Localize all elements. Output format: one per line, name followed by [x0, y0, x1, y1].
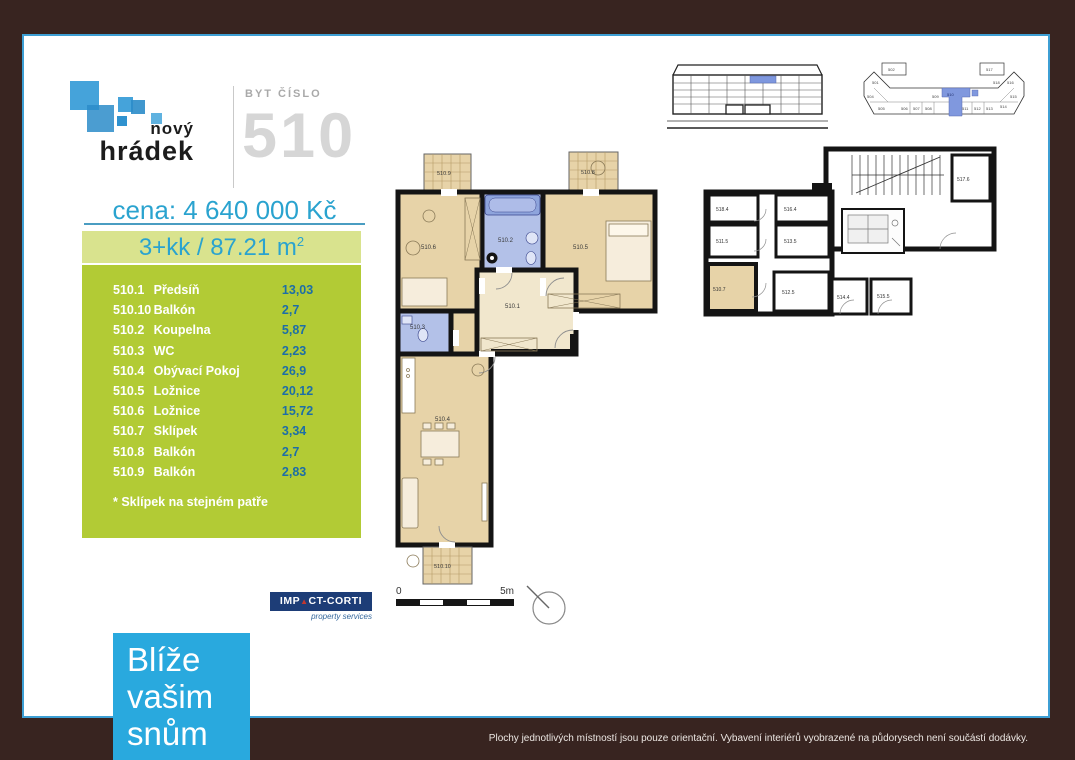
- plan-label: 514.4: [837, 295, 850, 301]
- layout-summary-sup: 2: [297, 234, 304, 249]
- overview-unit-label: 512: [974, 106, 981, 111]
- plan-label: 510.2: [498, 238, 514, 244]
- flyer-canvas: nový hrádek BYT ČÍSLO 510 cena: 4 640 00…: [0, 0, 1075, 760]
- room-name: Balkón: [154, 300, 282, 320]
- overview-unit-label: 514: [1000, 104, 1007, 109]
- room-code: 510.10: [113, 300, 154, 320]
- logo-square-icon: [131, 100, 145, 114]
- scale-bar-segments: [396, 599, 514, 606]
- overview-unit-label: 516: [1007, 80, 1014, 85]
- plan-label: 510.3: [410, 325, 426, 331]
- plan-label: 511.5: [716, 239, 728, 245]
- plan-label: 510.10: [434, 564, 451, 570]
- room-area: 15,72: [282, 401, 341, 421]
- plan-label: 518.4: [716, 207, 729, 213]
- cellar-floor-plan: 518.4 516.4 511.5 513.5 510.7 512.5 514.…: [700, 143, 1015, 328]
- overview-unit-label: 502: [888, 67, 895, 72]
- room-name: Sklípek: [154, 421, 282, 441]
- room-area: 2,83: [282, 462, 341, 482]
- plan-label: 512.5: [782, 290, 795, 296]
- room-area: 13,03: [282, 280, 341, 300]
- room-code: 510.6: [113, 401, 154, 421]
- brand-name: nový hrádek: [64, 120, 194, 164]
- room-area: 2,23: [282, 341, 341, 361]
- room-area: 2,7: [282, 300, 341, 320]
- room-area: 5,87: [282, 320, 341, 340]
- overview-unit-label: 508: [925, 106, 932, 111]
- plan-label: 516.4: [784, 207, 797, 213]
- impact-corti-text: CT-CORTI: [309, 595, 363, 607]
- room-name: Ložnice: [154, 381, 282, 401]
- price-underline: [84, 223, 365, 225]
- tagline-line: snům: [127, 715, 250, 752]
- overview-unit-label: 505: [878, 106, 885, 111]
- brand-name-bottom: hrádek: [64, 138, 194, 164]
- plan-label: 510.9: [437, 171, 451, 177]
- overview-unit-label: 517: [986, 67, 993, 72]
- plan-label: 510.6: [421, 245, 437, 251]
- room-name: WC: [154, 341, 282, 361]
- plan-label: 517.6: [957, 177, 970, 183]
- tagline-line: vašim: [127, 678, 250, 715]
- room-code: 510.9: [113, 462, 154, 482]
- room-code: 510.8: [113, 442, 154, 462]
- room-area: 2,7: [282, 442, 341, 462]
- impact-corti-logo: IMP▲CT-CORTI: [270, 592, 372, 611]
- plan-label: 510.1: [505, 304, 521, 310]
- header-divider: [233, 86, 234, 188]
- compass-icon: [519, 581, 579, 641]
- layout-summary-text: 3+kk / 87.21 m: [139, 234, 297, 261]
- room-code: 510.2: [113, 320, 154, 340]
- scale-start: 0: [396, 586, 402, 597]
- overview-unit-label: 504: [867, 94, 874, 99]
- table-row: 510.7Sklípek3,34: [113, 421, 341, 441]
- table-row: 510.9Balkón2,83: [113, 462, 341, 482]
- unit-number: 510: [242, 100, 356, 172]
- overview-unit-label: 509: [932, 94, 939, 99]
- plan-label: 513.5: [784, 239, 797, 245]
- floor-overview-plan: 502 501 504 505 506 507 508 509 510 511 …: [860, 58, 1028, 130]
- table-row: 510.8Balkón2,7: [113, 442, 341, 462]
- table-row: 510.5Ložnice20,12: [113, 381, 341, 401]
- table-row: 510.2Koupelna5,87: [113, 320, 341, 340]
- plan-label: 510.7: [713, 287, 726, 293]
- table-row: 510.1Předsíň13,03: [113, 280, 341, 300]
- room-area: 20,12: [282, 381, 341, 401]
- plan-label: 510.8: [581, 170, 595, 176]
- overview-unit-label-510: 510: [947, 92, 954, 97]
- room-code: 510.7: [113, 421, 154, 441]
- table-row: 510.6Ložnice15,72: [113, 401, 341, 421]
- room-name: Obývací Pokoj: [154, 361, 282, 381]
- unit-label: BYT ČÍSLO: [245, 88, 322, 100]
- overview-unit-label: 506: [901, 106, 908, 111]
- overview-unit-label: 501: [872, 80, 879, 85]
- tagline-line: Blíže: [127, 641, 250, 678]
- overview-unit-label: 515: [1010, 94, 1017, 99]
- room-code: 510.3: [113, 341, 154, 361]
- overview-unit-label: 507: [913, 106, 920, 111]
- room-name: Předsíň: [154, 280, 282, 300]
- scale-end: 5m: [500, 586, 514, 597]
- overview-unit-label: 518: [993, 80, 1000, 85]
- room-name: Balkón: [154, 462, 282, 482]
- layout-summary: 3+kk / 87.21 m2: [82, 231, 361, 263]
- highlighted-unit-elevation: [750, 76, 776, 83]
- room-name: Balkón: [154, 442, 282, 462]
- impact-corti-text: IMP: [280, 595, 300, 607]
- room-hallway: [477, 270, 576, 354]
- tagline-box: Blíže vašim snům: [113, 633, 250, 760]
- room-code: 510.4: [113, 361, 154, 381]
- room-code: 510.5: [113, 381, 154, 401]
- price-text: cena: 4 640 000 Kč: [84, 195, 365, 226]
- table-row: 510.4Obývací Pokoj26,9: [113, 361, 341, 381]
- table-footnote: * Sklípek na stejném patře: [113, 495, 341, 509]
- plan-label: 515.5: [877, 294, 890, 300]
- room-area: 3,34: [282, 421, 341, 441]
- table-row: 510.3WC2,23: [113, 341, 341, 361]
- table-row: 510.10Balkón2,7: [113, 300, 341, 320]
- building-elevation: [665, 58, 830, 136]
- impact-corti-triangle-icon: ▲: [300, 597, 308, 606]
- plan-label: 510.5: [573, 245, 589, 251]
- room-code: 510.1: [113, 280, 154, 300]
- flyer-page: nový hrádek BYT ČÍSLO 510 cena: 4 640 00…: [22, 34, 1050, 718]
- impact-corti-subtitle: property services: [270, 612, 372, 621]
- room-area: 26,9: [282, 361, 341, 381]
- scale-bar: 0 5m: [396, 586, 514, 606]
- plan-label: 510.4: [435, 417, 451, 423]
- room-name: Koupelna: [154, 320, 282, 340]
- disclaimer-text: Plochy jednotlivých místností jsou pouze…: [489, 733, 1028, 744]
- overview-unit-label: 511: [962, 106, 969, 111]
- room-table: 510.1Předsíň13,03 510.10Balkón2,7 510.2K…: [82, 265, 361, 538]
- room-name: Ložnice: [154, 401, 282, 421]
- overview-unit-label: 513: [986, 106, 993, 111]
